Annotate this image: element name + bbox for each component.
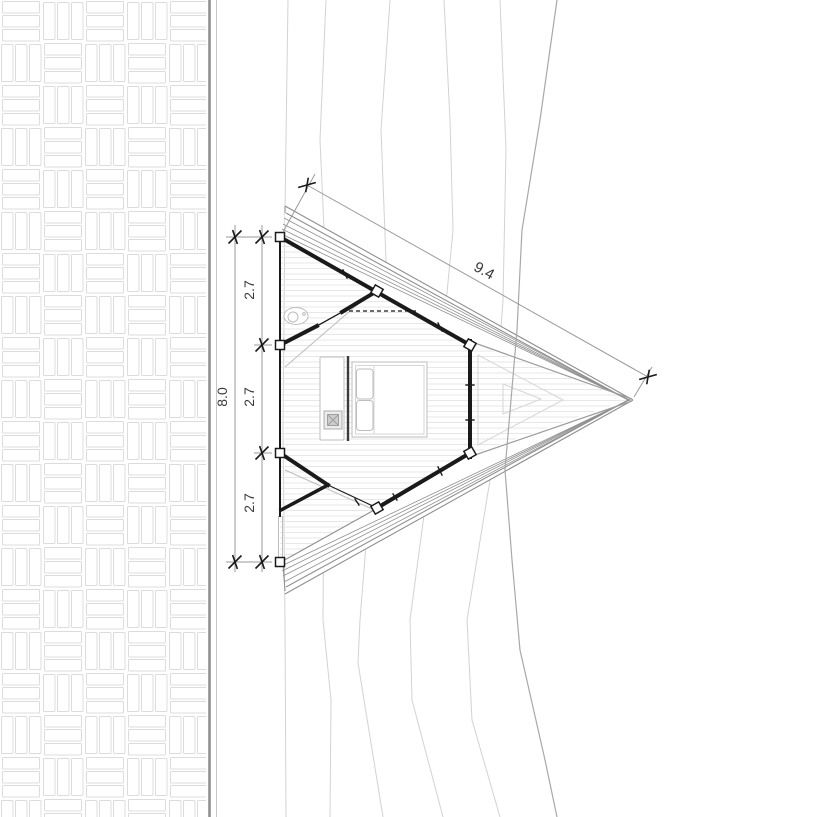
pillow [357, 369, 374, 399]
post [276, 449, 285, 458]
dim-label-segment: 2.7 [241, 493, 257, 513]
stove-cross [328, 415, 339, 426]
site-plan-page: 2.7 2.7 2.7 8.0 9.4 [0, 0, 818, 817]
pavement-hatch [0, 0, 206, 817]
sink-basin [288, 312, 298, 322]
post [276, 558, 285, 567]
pillow [357, 401, 374, 431]
dim-label-total: 8.0 [214, 387, 230, 407]
sink-tap [303, 313, 306, 316]
post [276, 233, 285, 242]
dim-label-segment: 2.7 [241, 387, 257, 407]
site-plan-drawing: 2.7 2.7 2.7 8.0 9.4 [0, 0, 818, 817]
post [276, 341, 285, 350]
dim-label-segment: 2.7 [241, 280, 257, 300]
